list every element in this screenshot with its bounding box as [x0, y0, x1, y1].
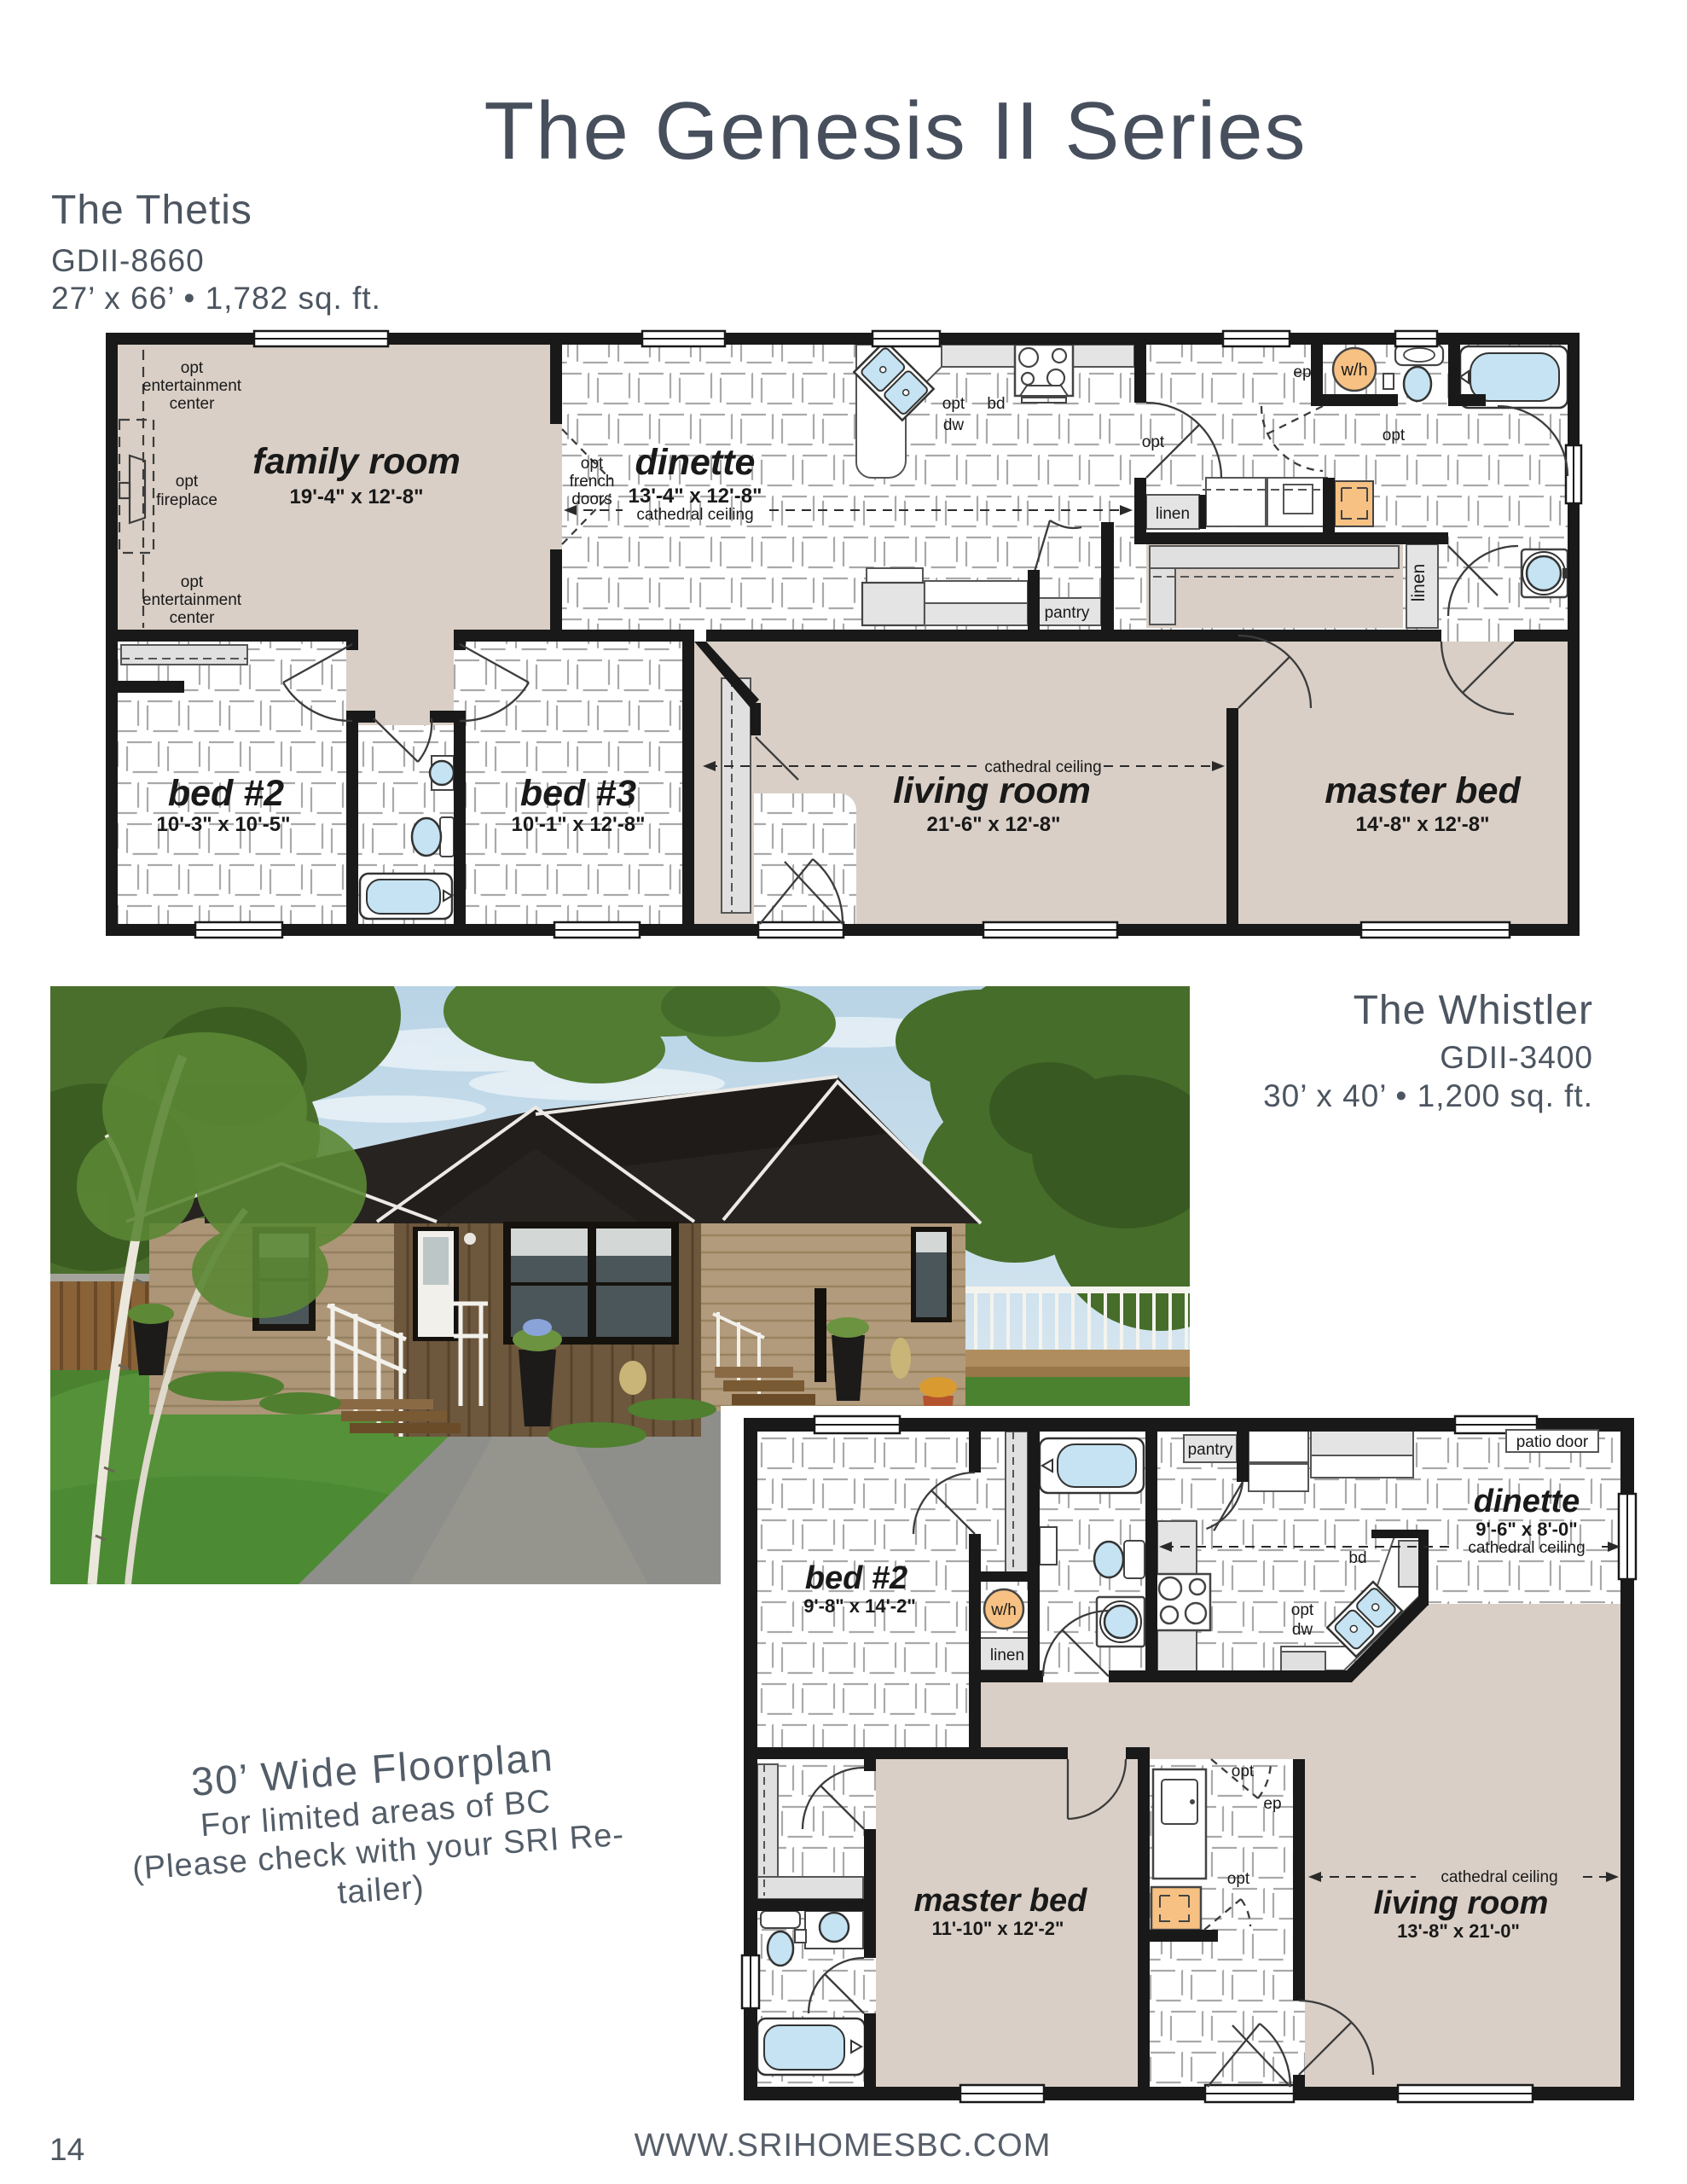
svg-text:opt: opt [176, 473, 199, 491]
svg-text:cathedral ceiling: cathedral ceiling [984, 758, 1101, 776]
svg-text:w/h: w/h [1340, 361, 1367, 380]
svg-text:opt: opt [581, 455, 604, 473]
svg-text:french: french [570, 473, 615, 491]
svg-text:GDII-8660: GDII-8660 [51, 243, 205, 278]
svg-text:dinette: dinette [1474, 1484, 1580, 1519]
svg-text:13'-8" x 21'-0": 13'-8" x 21'-0" [1397, 1920, 1520, 1942]
svg-text:center: center [170, 609, 215, 627]
svg-text:living room: living room [893, 770, 1091, 811]
svg-text:linen: linen [1156, 505, 1190, 523]
svg-text:pantry: pantry [1188, 1441, 1233, 1459]
svg-text:opt: opt [1142, 433, 1165, 451]
svg-text:21'-6" x 12'-8": 21'-6" x 12'-8" [927, 813, 1061, 836]
svg-text:11'-10" x 12'-2": 11'-10" x 12'-2" [932, 1918, 1064, 1939]
svg-text:w/h: w/h [990, 1601, 1017, 1619]
svg-text:bed #2: bed #2 [805, 1560, 907, 1596]
svg-text:10'-3" x 10'-5": 10'-3" x 10'-5" [157, 813, 291, 836]
svg-text:pantry: pantry [1045, 604, 1090, 622]
svg-text:dw: dw [1292, 1621, 1313, 1639]
svg-text:family room: family room [252, 441, 461, 482]
svg-text:tailer): tailer) [336, 1869, 426, 1911]
svg-text:dw: dw [943, 416, 965, 434]
svg-text:opt: opt [1383, 427, 1406, 444]
svg-text:cathedral ceiling: cathedral ceiling [1468, 1539, 1585, 1557]
svg-text:bd: bd [987, 395, 1005, 413]
svg-text:30’ x 40’ • 1,200 sq. ft.: 30’ x 40’ • 1,200 sq. ft. [1263, 1078, 1593, 1113]
svg-text:linen: linen [990, 1647, 1024, 1664]
svg-text:living room: living room [1374, 1885, 1549, 1921]
svg-text:9'-6" x 8'-0": 9'-6" x 8'-0" [1475, 1519, 1577, 1540]
svg-text:bed #2: bed #2 [168, 773, 284, 814]
svg-text:10'-1" x 12'-8": 10'-1" x 12'-8" [512, 813, 646, 836]
svg-text:dinette: dinette [635, 442, 756, 483]
svg-text:master bed: master bed [914, 1883, 1088, 1919]
svg-text:The Thetis: The Thetis [51, 188, 252, 233]
svg-text:doors: doors [571, 491, 612, 508]
svg-text:entertainment: entertainment [142, 377, 242, 395]
svg-text:The Genesis II Series: The Genesis II Series [484, 85, 1307, 177]
svg-text:opt: opt [1291, 1601, 1314, 1619]
svg-text:cathedral ceiling: cathedral ceiling [1441, 1868, 1557, 1886]
svg-text:bd: bd [1348, 1549, 1366, 1567]
svg-text:13'-4" x 12'-8": 13'-4" x 12'-8" [629, 485, 762, 508]
svg-text:linen: linen [1409, 564, 1429, 601]
svg-text:opt: opt [181, 573, 204, 591]
svg-text:opt: opt [1232, 1763, 1255, 1780]
svg-text:opt: opt [181, 359, 204, 377]
svg-text:patio door: patio door [1516, 1433, 1589, 1451]
svg-text:GDII-3400: GDII-3400 [1440, 1040, 1593, 1075]
svg-text:19'-4" x 12'-8": 19'-4" x 12'-8" [290, 485, 424, 508]
svg-text:bed #3: bed #3 [520, 773, 636, 814]
svg-text:ep: ep [1263, 1795, 1281, 1813]
svg-text:fireplace: fireplace [156, 491, 217, 509]
svg-text:The Whistler: The Whistler [1354, 988, 1593, 1033]
svg-text:WWW.SRIHOMESBC.COM: WWW.SRIHOMESBC.COM [635, 2128, 1052, 2164]
svg-text:opt: opt [942, 395, 965, 413]
svg-text:center: center [170, 395, 215, 413]
svg-text:opt: opt [1227, 1870, 1250, 1888]
svg-text:ep: ep [1293, 363, 1311, 381]
svg-text:9'-8" x 14'-2": 9'-8" x 14'-2" [803, 1595, 916, 1617]
svg-text:14: 14 [49, 2132, 84, 2167]
svg-text:14'-8" x 12'-8": 14'-8" x 12'-8" [1356, 813, 1490, 836]
svg-text:master bed: master bed [1325, 770, 1521, 811]
svg-text:cathedral ceiling: cathedral ceiling [636, 506, 753, 524]
svg-text:27’ x 66’ • 1,782 sq. ft.: 27’ x 66’ • 1,782 sq. ft. [51, 281, 381, 316]
svg-text:entertainment: entertainment [142, 591, 242, 609]
